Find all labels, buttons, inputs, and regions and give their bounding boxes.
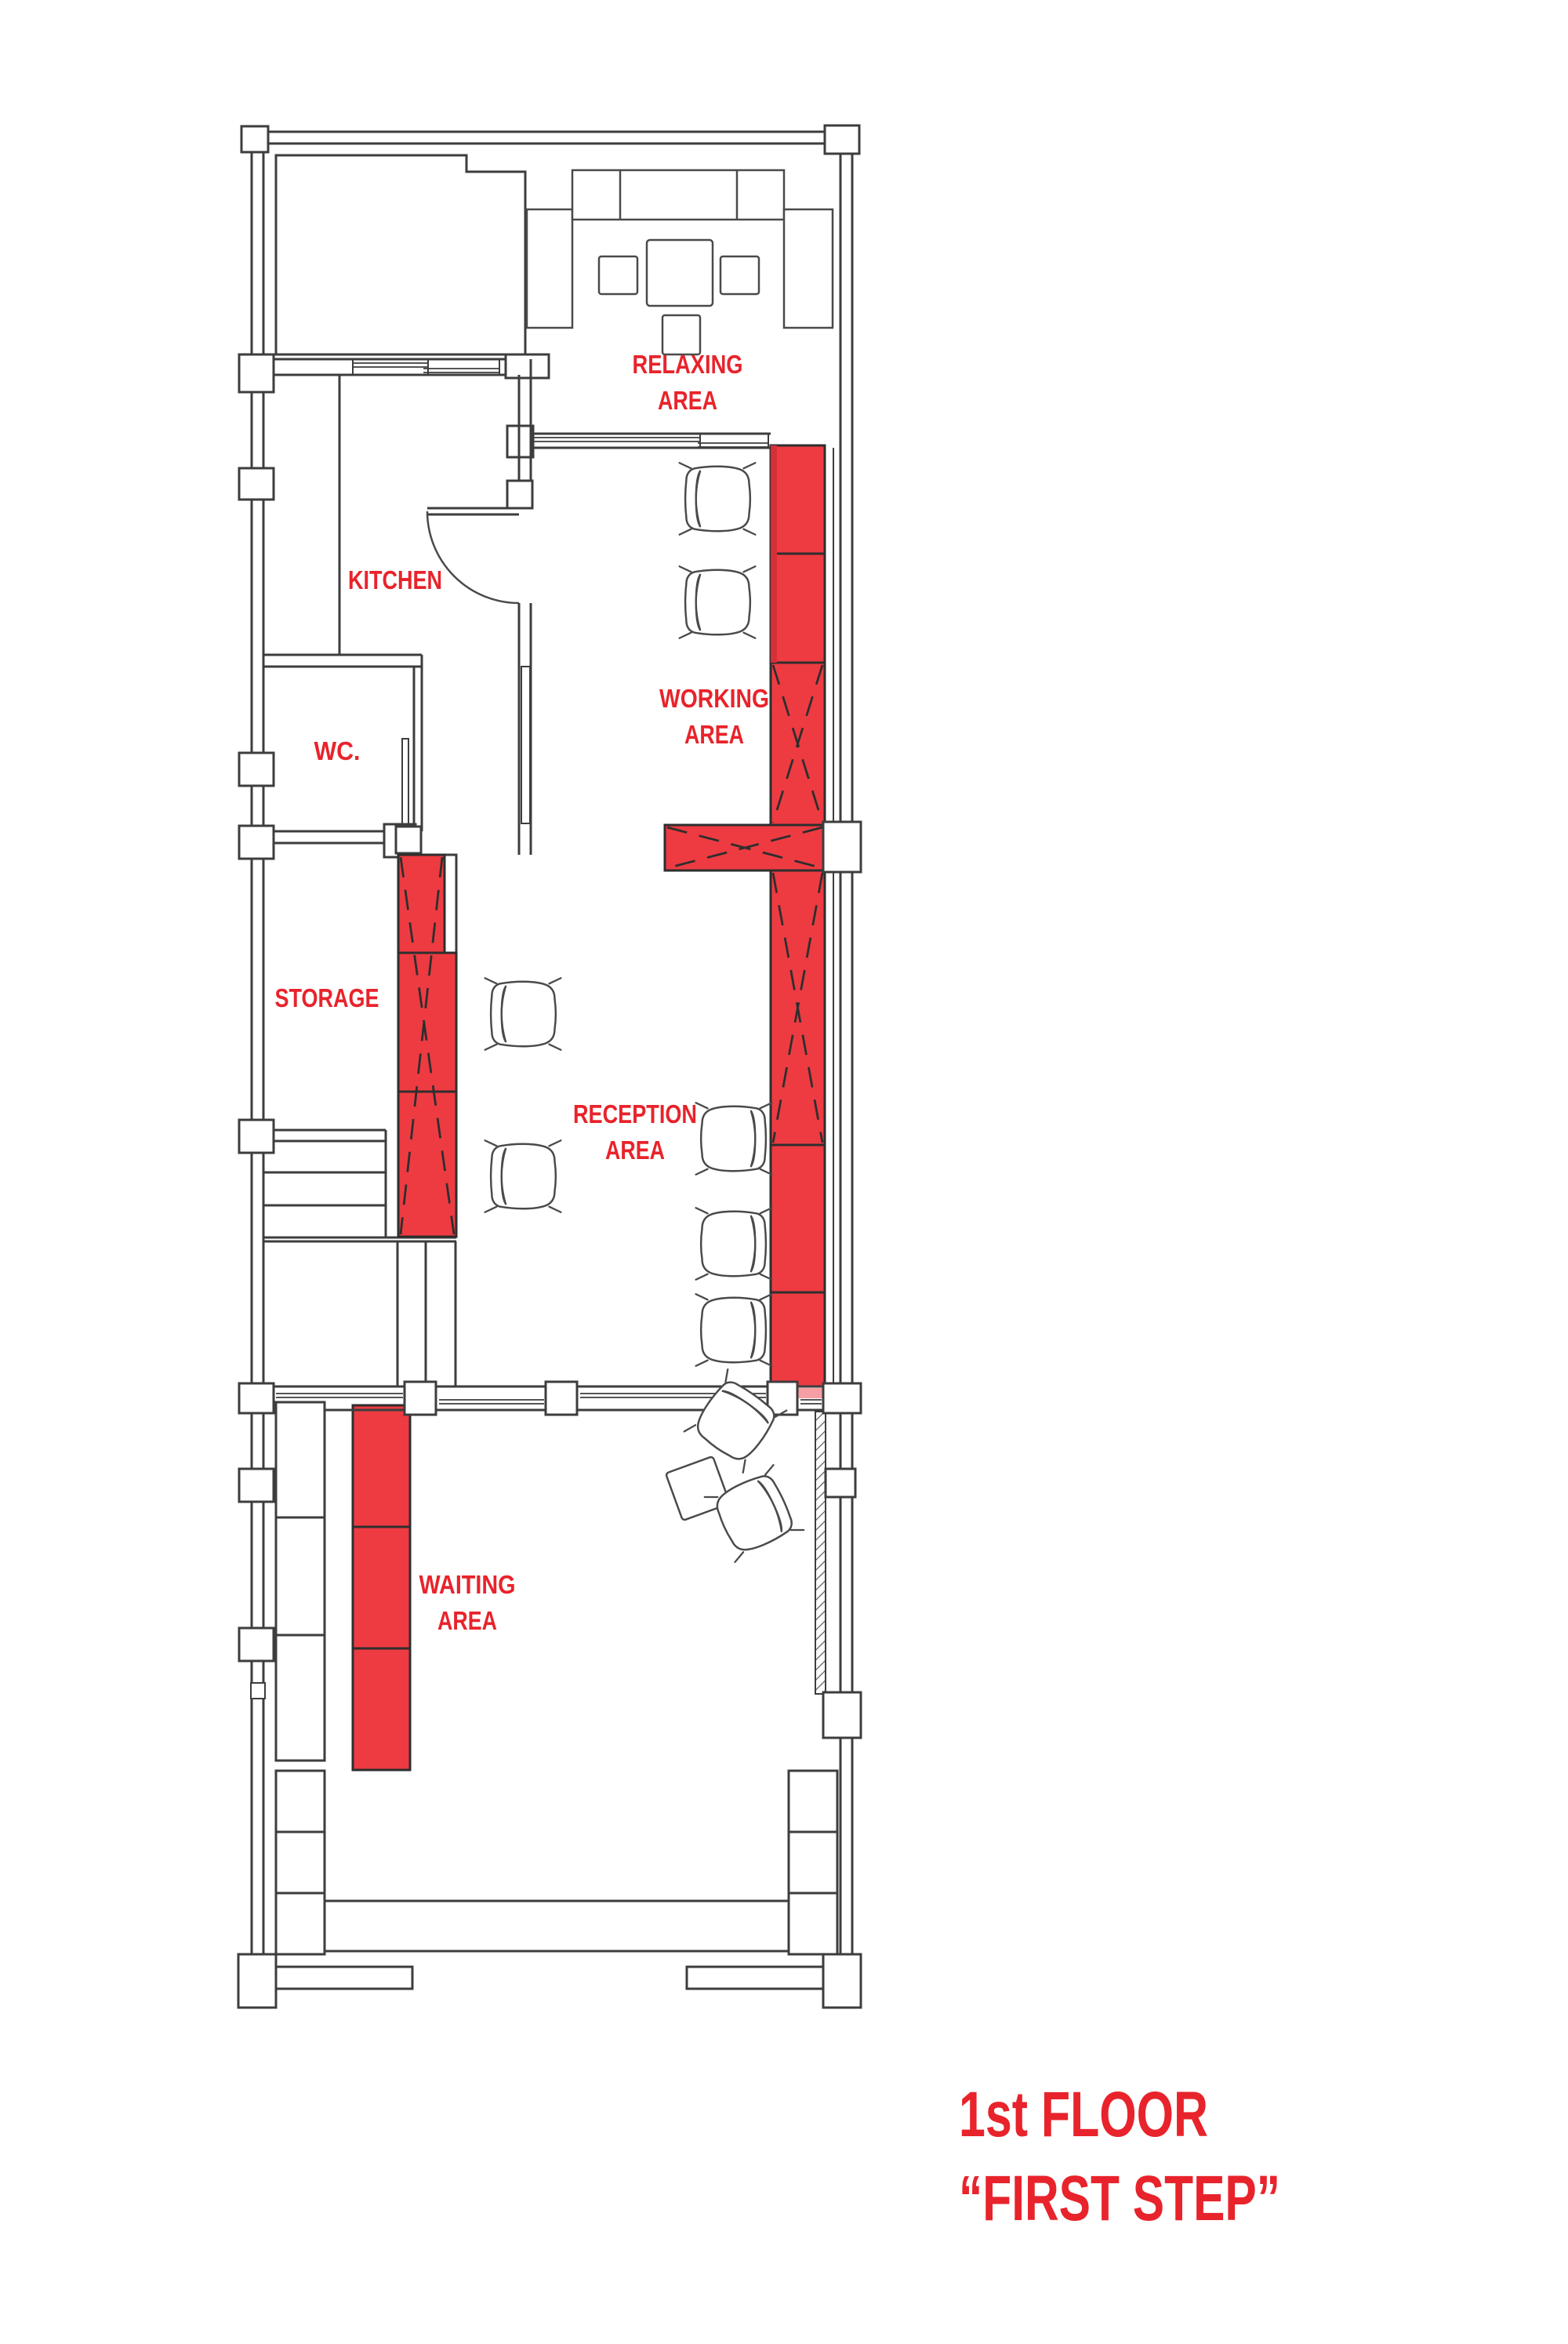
storage-red-cabinet bbox=[398, 953, 456, 1092]
reception-area-label: AREA bbox=[605, 1136, 665, 1165]
kitchen-room bbox=[263, 359, 532, 855]
side-table-right bbox=[720, 256, 759, 294]
storage-label: STORAGE bbox=[275, 983, 379, 1012]
entry-steps bbox=[238, 1771, 861, 2008]
working-area-label: WORKING bbox=[659, 684, 769, 713]
working-red-desk bbox=[771, 554, 825, 663]
waiting-area-label: WAITING bbox=[419, 1570, 516, 1599]
pier-right bbox=[789, 1771, 837, 1954]
relaxing-sofa-set bbox=[527, 170, 833, 354]
reception-red-desk bbox=[771, 1292, 825, 1386]
floor-title: 1st FLOOR bbox=[959, 2079, 1208, 2150]
reception-red-desk bbox=[771, 1145, 825, 1292]
chair bbox=[696, 1208, 772, 1280]
sofa-back bbox=[572, 170, 784, 220]
closet-under-stairs bbox=[397, 1241, 456, 1386]
storage-red-cabinet bbox=[398, 1092, 456, 1237]
pier-left bbox=[276, 1771, 325, 1954]
sofa-left-arm bbox=[527, 209, 572, 328]
wc-door-leaf bbox=[402, 739, 408, 825]
wc-label: WC. bbox=[314, 736, 361, 765]
floor-plan-page: RELAXING AREA KITCHEN WC. WORKING AREA S… bbox=[0, 0, 1568, 2344]
red-desk-edge bbox=[771, 445, 777, 663]
footing-right bbox=[823, 1954, 861, 2008]
chair bbox=[696, 1294, 772, 1366]
footing-left bbox=[238, 1954, 276, 2008]
relaxing-area-label: RELAXING bbox=[633, 350, 743, 379]
kitchen-label: KITCHEN bbox=[348, 565, 442, 594]
terrace-room bbox=[276, 155, 525, 354]
entrance-door-hatch bbox=[815, 1412, 826, 1694]
waiting-cabinet bbox=[276, 1402, 325, 1761]
relaxing-area-label: AREA bbox=[658, 386, 717, 415]
sofa-right-arm bbox=[784, 209, 833, 328]
title-block: 1st FLOOR “FIRST STEP” bbox=[959, 2079, 1280, 2234]
chair bbox=[485, 978, 561, 1050]
stool bbox=[662, 315, 700, 354]
outer-walls bbox=[252, 132, 852, 1954]
chair bbox=[680, 566, 756, 638]
window-band-terrace bbox=[263, 354, 549, 378]
coffee-table bbox=[647, 240, 713, 306]
side-table-left bbox=[599, 256, 637, 294]
waiting-area-label: AREA bbox=[437, 1606, 497, 1635]
chair bbox=[696, 1103, 772, 1175]
working-red-desk bbox=[771, 445, 825, 554]
working-area-label: AREA bbox=[684, 720, 744, 749]
floor-plan-drawing: RELAXING AREA KITCHEN WC. WORKING AREA S… bbox=[0, 0, 1568, 2344]
window-band-relaxing bbox=[507, 426, 771, 457]
reception-area-label: RECEPTION bbox=[573, 1099, 697, 1128]
chair bbox=[485, 1140, 561, 1212]
floor-subtitle: “FIRST STEP” bbox=[959, 2163, 1280, 2234]
chair bbox=[680, 463, 756, 535]
waiting-red-bench bbox=[353, 1405, 410, 1770]
